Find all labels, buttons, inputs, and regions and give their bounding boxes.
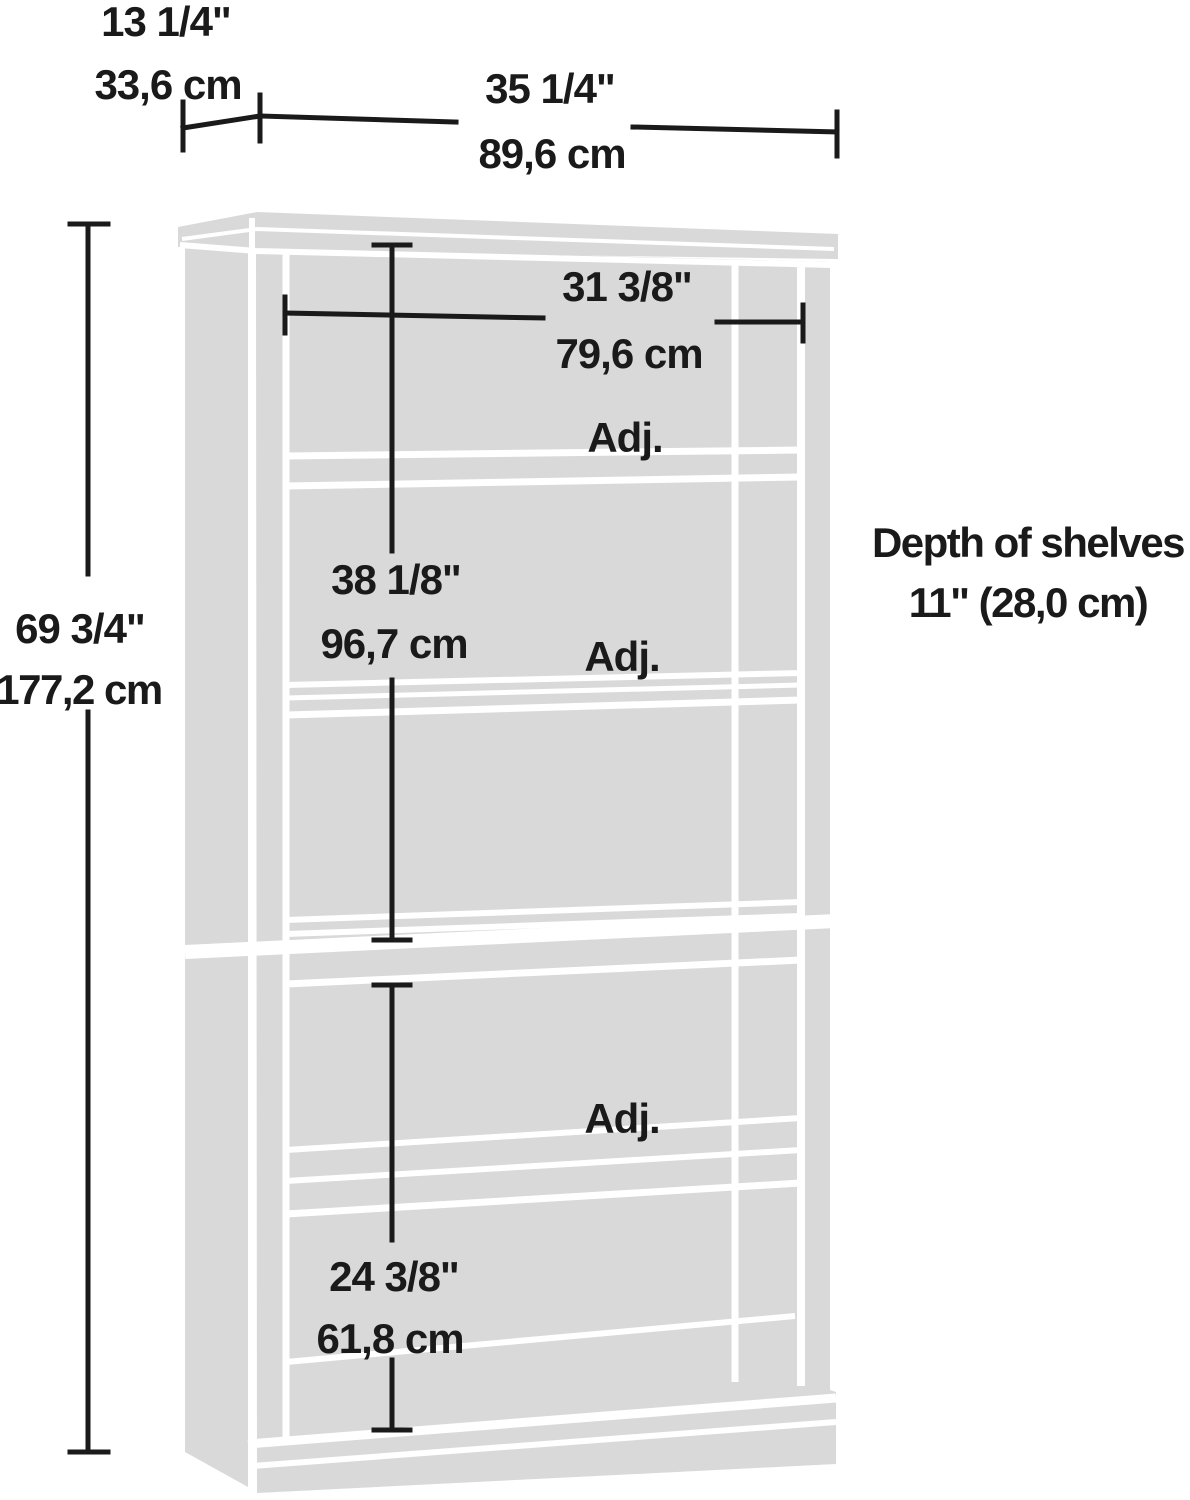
bookcase-dimension-drawing: 13 1/4" 33,6 cm 35 1/4" 89,6 cm 31 3/8" … bbox=[0, 0, 1190, 1500]
height-dimension-line bbox=[70, 224, 108, 1452]
upper-section-cm-label: 96,7 cm bbox=[320, 620, 467, 667]
height-cm-label: 177,2 cm bbox=[0, 666, 162, 713]
adjustable-shelf-label-3: Adj. bbox=[584, 1095, 659, 1142]
upper-section-inches-label: 38 1/8" bbox=[331, 556, 461, 603]
width-cm-label: 89,6 cm bbox=[478, 130, 625, 177]
width-span-line-right bbox=[633, 127, 837, 132]
lower-section-inches-label: 24 3/8" bbox=[329, 1253, 459, 1300]
shelf-depth-label-line1: Depth of shelves bbox=[872, 519, 1184, 566]
shelf-depth-label-line2: 11" (28,0 cm) bbox=[909, 579, 1148, 626]
height-inches-label: 69 3/4" bbox=[15, 605, 145, 652]
inner-width-cm-label: 79,6 cm bbox=[555, 330, 702, 377]
dimension-diagram: 13 1/4" 33,6 cm 35 1/4" 89,6 cm 31 3/8" … bbox=[0, 0, 1190, 1500]
bookcase bbox=[178, 212, 838, 1493]
bookcase-front-face bbox=[256, 247, 836, 1493]
width-inches-label: 35 1/4" bbox=[485, 65, 615, 112]
adjustable-shelf-label-1: Adj. bbox=[587, 414, 662, 461]
adjustable-shelf-label-2: Adj. bbox=[584, 633, 659, 680]
depth-cm-label: 33,6 cm bbox=[94, 61, 241, 108]
width-span-line-left bbox=[260, 116, 456, 122]
depth-span-line bbox=[183, 116, 260, 128]
lower-section-cm-label: 61,8 cm bbox=[316, 1315, 463, 1362]
inner-width-inches-label: 31 3/8" bbox=[562, 263, 692, 310]
depth-inches-label: 13 1/4" bbox=[101, 0, 231, 45]
bookcase-left-side-panel bbox=[185, 217, 248, 1487]
